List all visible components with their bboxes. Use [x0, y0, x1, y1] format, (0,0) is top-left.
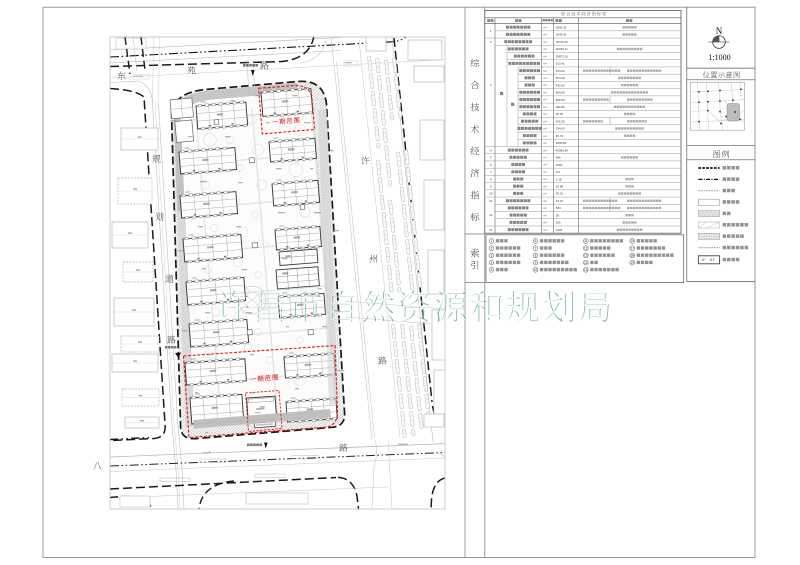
svg-text:18.47: 18.47: [556, 199, 564, 203]
svg-text:3.2: 3.2: [556, 170, 560, 174]
svg-text:m²: m²: [544, 34, 547, 37]
svg-text:15: 15: [584, 268, 588, 272]
svg-text:m²: m²: [544, 63, 547, 66]
svg-text:m²: m²: [544, 164, 547, 167]
svg-text:874.30: 874.30: [556, 69, 565, 73]
svg-text:m²: m²: [544, 113, 547, 116]
svg-text:526: 526: [556, 221, 561, 225]
svg-text:1428: 1428: [556, 228, 563, 232]
svg-text:29702.10: 29702.10: [556, 40, 568, 44]
svg-text:4: 4: [491, 261, 493, 265]
svg-text:16: 16: [630, 239, 634, 243]
svg-text:m²: m²: [544, 84, 547, 87]
svg-text:13: 13: [489, 228, 493, 232]
svg-text:m²: m²: [544, 70, 547, 73]
svg-text:11: 11: [489, 199, 492, 203]
svg-text:19: 19: [630, 261, 634, 265]
svg-text:m²: m²: [544, 120, 547, 123]
svg-text:8: 8: [535, 254, 537, 258]
svg-text:m²: m²: [544, 48, 547, 51]
svg-text:11F: 11F: [709, 258, 714, 262]
svg-text:m²: m²: [544, 142, 547, 145]
svg-text:m²: m²: [544, 178, 547, 181]
svg-text:m²: m²: [544, 26, 547, 29]
svg-text:m²: m²: [544, 106, 547, 109]
svg-text:854.90: 854.90: [556, 91, 565, 95]
svg-text:11: 11: [584, 239, 588, 243]
svg-text:513.41: 513.41: [556, 62, 565, 66]
svg-text:25.98: 25.98: [556, 185, 564, 189]
svg-text:58: 58: [556, 213, 560, 217]
svg-text:35.30: 35.30: [556, 112, 564, 116]
svg-text:m²: m²: [544, 214, 547, 217]
svg-text:m²: m²: [544, 200, 547, 203]
svg-text:m²: m²: [544, 149, 547, 152]
svg-text:m²: m²: [544, 193, 547, 196]
svg-text:2: 2: [491, 246, 493, 250]
svg-text:30246.41: 30246.41: [556, 47, 568, 51]
svg-text:9: 9: [535, 261, 537, 265]
svg-text:m²: m²: [544, 128, 547, 131]
svg-text:m²: m²: [544, 135, 547, 138]
svg-text:334.00: 334.00: [556, 127, 565, 131]
svg-text:m²: m²: [544, 92, 547, 95]
svg-text:1584: 1584: [556, 163, 563, 167]
svg-text:18: 18: [630, 254, 634, 258]
svg-text:14: 14: [584, 261, 588, 265]
svg-text:m²: m²: [544, 77, 547, 80]
svg-text:2.18: 2.18: [556, 177, 562, 181]
svg-text:m²: m²: [544, 229, 547, 232]
svg-text:990.90: 990.90: [556, 105, 565, 109]
svg-text:29872.10: 29872.10: [556, 54, 568, 58]
svg-text:432.00: 432.00: [556, 83, 565, 87]
svg-text:6536.30: 6536.30: [556, 26, 567, 30]
svg-text:m²: m²: [544, 55, 547, 58]
svg-text:1:1000: 1:1000: [708, 53, 730, 62]
svg-text:m²: m²: [544, 185, 547, 188]
svg-text:12: 12: [489, 213, 493, 217]
svg-text:10: 10: [489, 192, 493, 196]
svg-text:2045.30: 2045.30: [556, 33, 567, 37]
svg-text:1: 1: [491, 239, 493, 243]
svg-text:45.70: 45.70: [556, 134, 564, 138]
svg-text:6: 6: [535, 239, 537, 243]
svg-text:17: 17: [630, 246, 634, 250]
svg-text:822.00: 822.00: [556, 98, 565, 102]
svg-text:m²: m²: [544, 41, 547, 44]
svg-text:40382.84: 40382.84: [556, 148, 568, 152]
svg-text:13: 13: [584, 254, 588, 258]
svg-text:m²: m²: [544, 171, 547, 174]
svg-text:1F: 1F: [701, 258, 705, 262]
svg-text:m²: m²: [544, 99, 547, 102]
svg-text:m²: m²: [544, 157, 547, 160]
svg-text:874.30: 874.30: [556, 76, 565, 80]
svg-text:3296.85: 3296.85: [556, 141, 567, 145]
svg-text:35.01: 35.01: [556, 192, 564, 196]
svg-text:584: 584: [556, 206, 561, 210]
svg-text:12: 12: [584, 246, 588, 250]
svg-text:m²: m²: [544, 207, 547, 210]
svg-text:10: 10: [534, 268, 538, 272]
svg-text:5: 5: [491, 268, 493, 272]
svg-text:496: 496: [556, 156, 561, 160]
svg-text:m²: m²: [544, 222, 547, 225]
svg-text:7: 7: [535, 246, 537, 250]
svg-text:3: 3: [491, 254, 493, 258]
svg-text:425.30: 425.30: [556, 120, 565, 124]
svg-text:N: N: [716, 26, 723, 36]
